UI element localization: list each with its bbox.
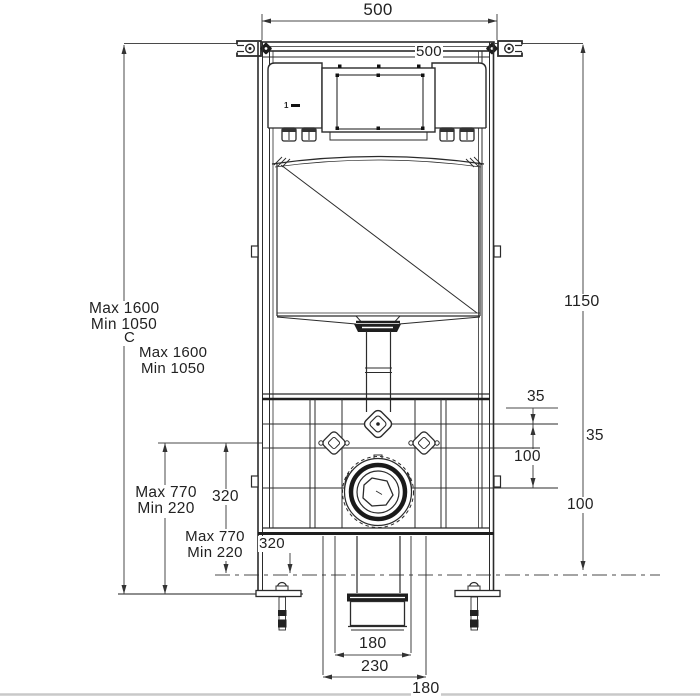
section-mark-label: C <box>123 330 136 346</box>
dim-frame-height-echo-label: Max 1600 Min 1050 <box>138 345 208 377</box>
technical-drawing-page: 500 500 1150 Max 1600 Min 1050 C Max 160… <box>0 0 700 700</box>
dim-frame-max-label: Max 1600 <box>89 301 159 317</box>
dim-pan-height-label: Max 770 Min 220 <box>134 485 198 518</box>
dim-frame-min-echo-label: Min 1050 <box>139 361 207 377</box>
dim-pan-min-label: Min 220 <box>135 501 197 517</box>
dim-offset-100-label: 100 <box>513 449 542 465</box>
outlet-flange <box>343 455 414 528</box>
frame-clip <box>252 476 259 487</box>
cistern-frame-drawing <box>0 0 700 700</box>
frame-clip <box>252 246 259 257</box>
dim-offset-35-echo-label: 35 <box>585 428 605 444</box>
inspection-box <box>322 68 435 132</box>
flush-unit-mark-text: 1 <box>284 101 289 110</box>
dim-outlet-180-label: 180 <box>358 636 388 653</box>
dim-offset-100-echo-label: 100 <box>566 497 595 513</box>
frame-clip <box>494 476 501 487</box>
flush-unit-mark: 1 <box>283 102 301 110</box>
dim-offset-35-label: 35 <box>526 389 546 405</box>
lower-fixing-section <box>258 394 558 675</box>
dim-pan-height-echo-label: Max 770 Min 220 <box>183 529 247 561</box>
dim-bottom-180-echo-label: 180 <box>411 681 441 698</box>
cistern-tank <box>272 157 484 323</box>
flush-pipe <box>277 317 480 412</box>
frame-clip <box>494 246 501 257</box>
dim-pan-max-echo-label: Max 770 <box>184 529 246 545</box>
dim-frame-max-echo-label: Max 1600 <box>139 345 207 361</box>
inlet-fitting <box>362 408 393 439</box>
fixing-bolt-left <box>319 430 349 455</box>
dim-outlet-320-echo-label: 320 <box>258 536 286 552</box>
waste-outlet-collar <box>347 594 408 631</box>
dim-bolts-230-label: 230 <box>360 659 390 676</box>
dim-outlet-320-label: 320 <box>211 489 240 505</box>
dim-right-height-label: 1150 <box>563 294 601 311</box>
fixing-bolt-right <box>409 430 439 455</box>
dim-pan-min-echo-label: Min 220 <box>184 545 246 561</box>
flush-unit-mark-bar <box>291 104 300 107</box>
wall-bracket-right <box>498 41 524 56</box>
tank-diagonal <box>281 165 477 313</box>
wall-bracket-left <box>235 41 261 56</box>
lid-hatching <box>274 157 482 167</box>
dim-pan-max-label: Max 770 <box>135 485 197 501</box>
dim-top-width-echo-label: 500 <box>415 44 443 60</box>
dim-top-width-label: 500 <box>352 1 404 19</box>
